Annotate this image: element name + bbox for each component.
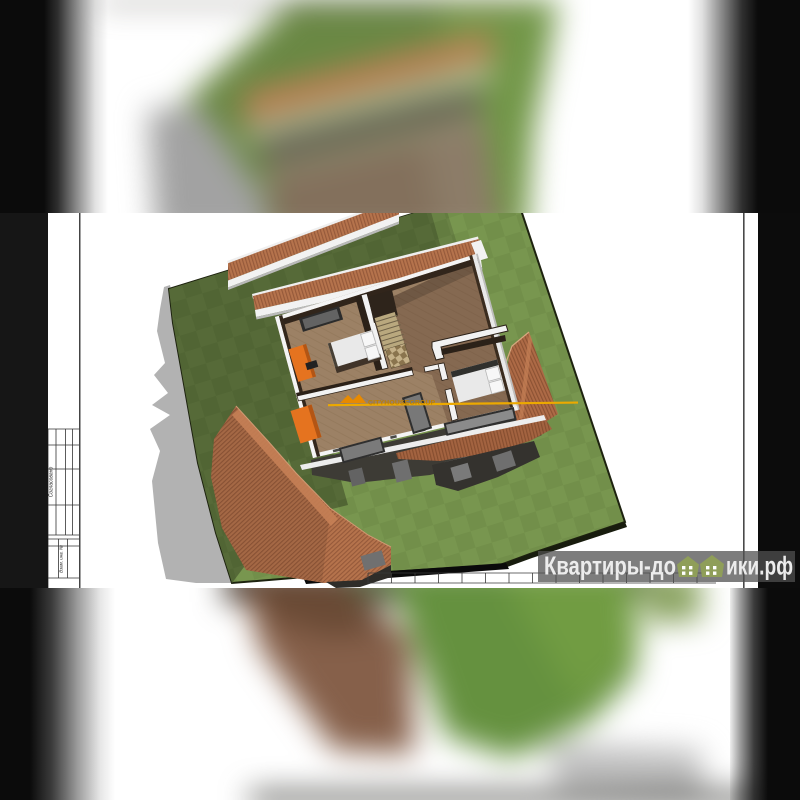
svg-text:Квартиры-до: Квартиры-до <box>544 551 676 581</box>
svg-text:ики.рф: ики.рф <box>726 551 793 581</box>
